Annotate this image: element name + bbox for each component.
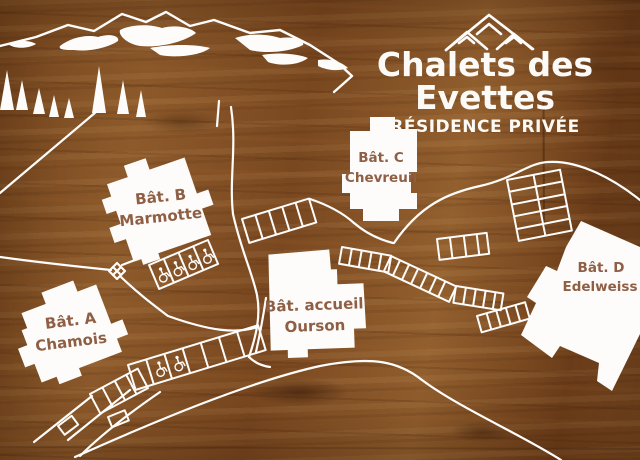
- parking-row-mid: [242, 199, 316, 243]
- accessible-parking-icon: [172, 354, 186, 371]
- road-marking: [108, 410, 129, 427]
- pine-tree-icon: [136, 90, 146, 117]
- building-d-sublabel: Edelweiss: [563, 279, 638, 295]
- parking-grid-d: [507, 170, 572, 241]
- road: [0, 112, 96, 193]
- road-marking: [58, 416, 78, 435]
- building-c-label: Bât. C: [358, 150, 404, 166]
- accessible-parking-icon: [154, 360, 168, 377]
- pine-tree-icon: [92, 66, 106, 113]
- snow-patch: [120, 25, 196, 46]
- road: [121, 277, 258, 331]
- road: [0, 257, 111, 270]
- snow-patch: [262, 54, 308, 65]
- road: [217, 101, 219, 126]
- pine-tree-icon: [64, 98, 74, 118]
- building-d-label: Bât. D: [578, 260, 625, 276]
- parking-row-accessible-a: [128, 325, 266, 390]
- parking-band-1: [339, 247, 391, 272]
- road: [231, 107, 233, 214]
- road: [34, 396, 92, 442]
- parking-block-small: [437, 233, 489, 260]
- pine-tree-icon: [16, 80, 28, 110]
- building-d-shape: [521, 221, 640, 391]
- road: [233, 214, 258, 357]
- snow-patch: [150, 45, 210, 56]
- building-a-shape: [2, 269, 136, 394]
- pine-tree-icon: [33, 88, 45, 114]
- parking-band-3: [453, 286, 503, 310]
- parking-band-2: [384, 256, 456, 302]
- pine-tree-icon: [0, 70, 14, 110]
- road: [249, 357, 270, 367]
- sign-title-block: Chalets des Evettes RÉSIDENCE PRIVÉE: [330, 48, 640, 137]
- parking-row-d: [477, 302, 530, 332]
- building-c-sublabel: Chevreuil: [345, 170, 417, 186]
- pine-tree-icon: [49, 95, 59, 117]
- building-b-shape: [92, 142, 225, 271]
- road: [68, 390, 130, 440]
- building-accueil-sublabel: Ourson: [284, 316, 345, 336]
- wooden-site-map-sign: Bât. C Chevreuil Bât. B Marmotte Bât. A …: [0, 0, 640, 460]
- building-accueil-label: Bât. accueil: [265, 294, 364, 315]
- sign-title: Chalets des Evettes: [330, 48, 640, 114]
- sign-subtitle: RÉSIDENCE PRIVÉE: [330, 117, 640, 137]
- pine-tree-icon: [117, 80, 129, 114]
- road: [75, 361, 561, 460]
- snow-patch: [60, 35, 119, 50]
